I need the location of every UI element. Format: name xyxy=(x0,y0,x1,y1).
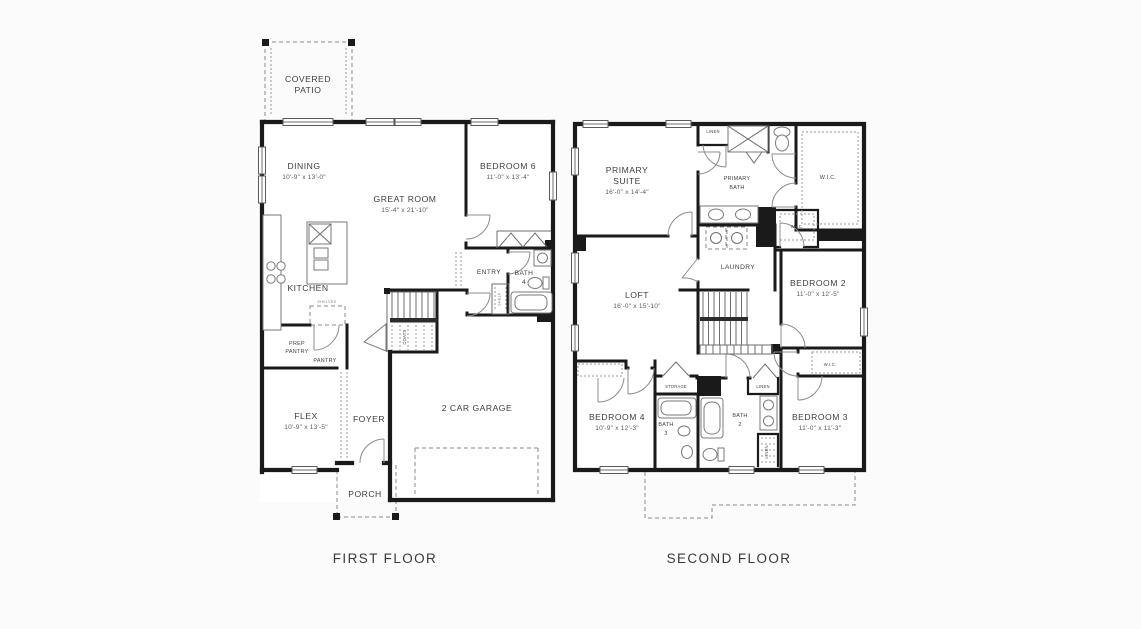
toilet-icon xyxy=(543,277,549,289)
cooktop-burner-icon xyxy=(267,262,275,270)
label-storage: STORAGE xyxy=(665,384,687,389)
label-laundry: LAUNDRY xyxy=(721,264,755,271)
window-marker xyxy=(259,176,266,203)
sink-icon xyxy=(736,209,751,220)
label-primary-bath: BATH xyxy=(729,185,744,191)
label-primary-suite-dims: 16'-0" x 14'-4" xyxy=(605,189,649,196)
bathtub-icon xyxy=(704,402,720,434)
label-bedroom3: BEDROOM 3 xyxy=(792,412,848,422)
kitchen-counter xyxy=(263,215,281,330)
label-prep-pantry: PANTRY xyxy=(285,349,308,355)
window-marker xyxy=(471,119,498,126)
window-marker xyxy=(395,119,421,126)
window-marker xyxy=(283,119,333,126)
label-linen-mid: LINEN xyxy=(756,384,769,389)
window-marker xyxy=(861,308,868,336)
label-bedroom6: BEDROOM 6 xyxy=(480,161,536,171)
sink-icon xyxy=(538,253,548,263)
label-dining: DINING xyxy=(287,161,320,171)
label-great-room-dims: 15'-4" x 21'-10" xyxy=(381,207,429,214)
label-covered-patio: COVERED xyxy=(285,74,331,84)
sink-icon xyxy=(314,248,328,258)
window-marker xyxy=(666,121,691,128)
label-primary-suite: SUITE xyxy=(613,176,641,186)
window-marker xyxy=(572,148,579,175)
floorplan-canvas: COVERED PATIO DINING 10'-9" x 13'-0" GRE… xyxy=(0,0,1141,629)
label-flex-dims: 10'-9" x 13'-5" xyxy=(284,424,328,431)
stair-rail xyxy=(700,317,748,321)
label-loft-dims: 16'-0" x 15'-10" xyxy=(613,303,661,310)
label-bath3: BATH xyxy=(658,422,673,428)
window-marker xyxy=(572,253,579,283)
sink-icon xyxy=(314,260,328,270)
roofline-outline xyxy=(645,472,855,518)
label-shelf: SHELF xyxy=(498,292,502,305)
toilet-icon xyxy=(703,449,717,461)
sink-icon xyxy=(678,426,690,436)
label-cabinet: SHELVES xyxy=(318,300,337,304)
window-marker xyxy=(600,467,628,474)
sink-icon xyxy=(764,416,774,426)
label-great-room: GREAT ROOM xyxy=(374,194,437,204)
label-bedroom2: BEDROOM 2 xyxy=(790,278,846,288)
label-bath4: 4 xyxy=(522,279,526,286)
label-bedroom4-dims: 10'-9" x 12'-3" xyxy=(595,425,639,432)
window-marker xyxy=(366,119,394,126)
label-bedroom2-dims: 11'-0" x 12'-5" xyxy=(796,291,840,298)
label-flex: FLEX xyxy=(294,411,318,421)
window-marker xyxy=(799,467,824,474)
first-floor-plan: COVERED PATIO DINING 10'-9" x 13'-0" GRE… xyxy=(259,39,557,566)
label-bath3: 3 xyxy=(664,431,667,437)
label-covered-patio: PATIO xyxy=(294,85,321,95)
label-entry: ENTRY xyxy=(477,269,501,276)
window-marker xyxy=(583,121,608,128)
label-bedroom6-dims: 11'-0" x 13'-4" xyxy=(486,174,530,181)
second-floor-plan: PRIMARY SUITE 16'-0" x 14'-4" LINEN PRIM… xyxy=(572,121,868,567)
toilet-icon xyxy=(682,446,693,459)
cooktop-burner-icon xyxy=(277,275,285,283)
label-dining-dims: 10'-9" x 13'-0" xyxy=(282,174,326,181)
label-bedroom4: BEDROOM 4 xyxy=(589,412,645,422)
label-wic-bedroom3: W.I.C. xyxy=(824,362,837,367)
first-floor-caption: FIRST FLOOR xyxy=(333,551,437,566)
label-foyer: FOYER xyxy=(353,414,385,424)
label-bath2: BATH xyxy=(732,413,747,419)
label-loft: LOFT xyxy=(625,290,649,300)
floorplan-page: COVERED PATIO DINING 10'-9" x 13'-0" GRE… xyxy=(0,0,1141,629)
label-prep-pantry: PREP xyxy=(289,341,305,347)
stair-rail xyxy=(390,318,437,323)
label-porch: PORCH xyxy=(348,489,382,499)
label-coats: COATS xyxy=(402,329,407,344)
label-bath2: 2 xyxy=(738,422,741,428)
toilet-icon xyxy=(776,135,789,151)
sink-icon xyxy=(764,400,774,410)
window-marker xyxy=(572,325,579,351)
bathtub-icon xyxy=(515,295,547,310)
window-marker xyxy=(550,172,557,200)
bathtub-icon xyxy=(661,401,691,415)
window-marker xyxy=(259,147,266,174)
label-wic-bedroom2: W.I.C. xyxy=(791,224,804,229)
label-bedroom3-dims: 11'-0" x 11'-3" xyxy=(799,425,842,432)
label-primary-suite: PRIMARY xyxy=(606,165,649,175)
label-bath4: BATH xyxy=(515,270,534,277)
cooktop-burner-icon xyxy=(267,275,275,283)
label-linen-top: LINEN xyxy=(706,129,719,134)
label-wic-primary: W.I.C. xyxy=(820,175,836,181)
sink-icon xyxy=(709,209,724,220)
toilet-icon xyxy=(718,448,724,461)
label-pantry: PANTRY xyxy=(313,358,336,364)
label-linen-low: LINEN xyxy=(764,445,769,458)
label-kitchen: KITCHEN xyxy=(287,283,328,293)
label-garage: 2 CAR GARAGE xyxy=(442,403,512,413)
window-marker xyxy=(292,467,317,474)
second-floor-caption: SECOND FLOOR xyxy=(667,551,792,566)
toilet-icon xyxy=(528,278,542,289)
label-primary-bath: PRIMARY xyxy=(724,176,751,182)
cooktop-burner-icon xyxy=(277,262,285,270)
window-marker xyxy=(729,467,754,474)
